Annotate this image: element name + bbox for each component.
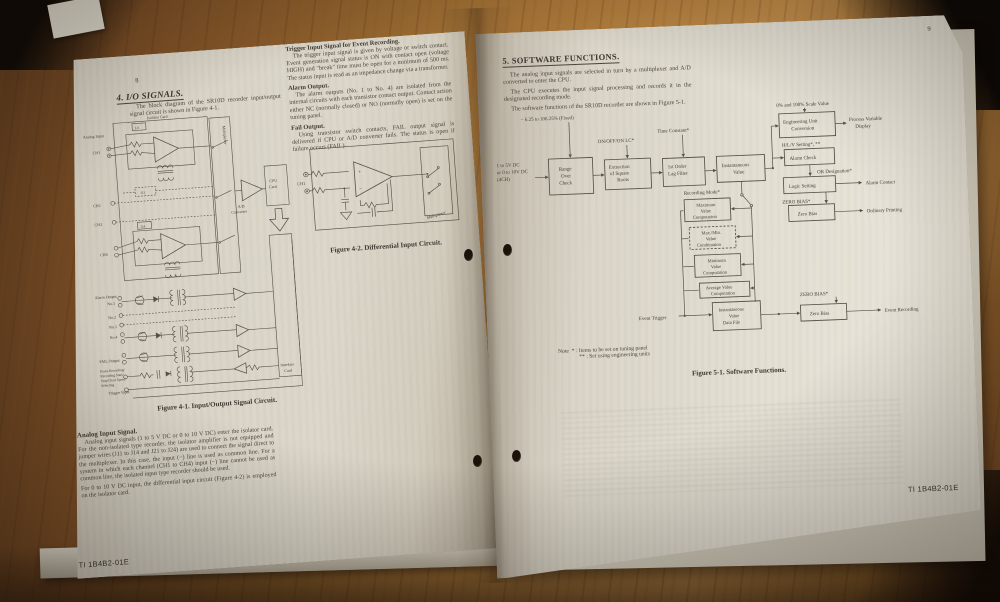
left-page: 8 4. I/O SIGNALS. The block diagram of t… [40,31,503,579]
fig41-if2: Card [284,368,292,374]
f51-mm3: Combination [697,242,722,248]
f51-eng2: Conversion [791,126,815,132]
fig41-multiplexer: Multiplexer [221,125,228,145]
f51-lag1: 1st Order [668,165,687,171]
f51-zero1: Zero Bias [798,212,818,218]
f51-out-event: Event Recording [885,307,919,313]
f51-ext1: Extraction [609,165,631,171]
figure-4-1-caption: Figure 4-1. Input/Output Signal Circuit. [117,393,317,416]
trigger-body: The trigger input signal is given by vol… [286,42,451,83]
trigger-section: Trigger Input Signal for Event Recording… [285,34,456,156]
fig41-j24: J24 [140,224,145,228]
f51-df1: Instantaneous [718,306,744,312]
figure-5-1-caption: Figure 5-1. Software Functions. [629,363,849,380]
punch-hole-2 [503,244,512,256]
right-page: 9 5. SOFTWARE FUNCTIONS. The analog inpu… [475,14,982,578]
fig42-minus: − [359,187,362,192]
fig41-cpu2: Card [269,184,277,190]
f51-out-ordinary: Ordinary Printing [867,208,903,214]
f51-lag2: Lag Filter [668,172,688,178]
f51-ann-onoff: ON/OFF/ON LC* [598,139,635,145]
right-doc-code: TI 1B4B2-01E [908,483,959,494]
figure-note: Note * : Items to be set on tuning panel… [558,345,650,361]
f51-ann-fixed: − 6.25 to 106.25% (Fixed) [521,116,575,123]
punch-hole-4 [512,450,521,462]
f51-range1: Range [559,167,573,173]
analog-body1: Analog input signals (1 to 5 V DC or 0 t… [77,426,276,483]
analog-body2: For 0 to 10 V DC input, the differential… [81,472,278,501]
f51-event-trigger: Event Trigger [639,316,667,322]
cover-corner-top-left [47,0,105,39]
left-doc-code: TI 1B4B2-01E [78,557,129,570]
fig41-no2: No.2 [108,315,116,321]
f51-df2: Value [729,313,740,318]
f51-range3: Check [559,181,572,187]
fig41-no4: No.4 [109,334,117,340]
note2-symbol: ** : [579,354,588,360]
f51-input3: (4CH) [497,178,510,184]
fig41-ad2: Converter [231,209,248,215]
punch-hole-1 [464,249,473,261]
fig41-trigger-input: Trigger Input [108,389,130,396]
right-page-number: 9 [927,26,931,33]
fig42-ch1-label: CH1 [297,181,305,187]
fig41-if1: Interface [280,361,295,367]
f51-out-alarm: Alarm Contact [865,180,895,186]
software-para2: The CPU executes the input signal proces… [504,82,692,104]
software-para3: The software functions of the SR10D reco… [504,99,692,114]
alarm-body: The alarm outputs (No. 1 to No. 4) are i… [289,81,454,122]
alarm-heading: Alarm Output. [288,73,451,92]
f51-logic: Logic Setting [789,184,817,190]
left-section-heading: 4. I/O SIGNALS. [116,88,184,105]
fig41-event3: Stop/Chart Speed [101,377,126,383]
fig41-fail-output: FAIL Output [99,358,120,365]
note2-text: Set using engineering units [589,351,650,359]
note-label: Note [558,348,569,354]
f51-max2: Value [700,208,711,213]
note1-symbol: * : [572,348,578,354]
punch-hole-3 [473,455,482,467]
fig41-ch4: CH4 [100,252,108,258]
f51-range2: Over [561,174,572,179]
f51-ann-time: Time Constant* [657,128,690,134]
f51-lbl-zero1: ZERO BIAS* [782,200,811,206]
fig41-j11: J11 [140,191,145,195]
fig41-event4: Selecting [101,383,115,388]
figure-4-1-diagram: Analog Input CH1 Isolator Card J21 J11 C… [80,100,307,409]
f51-max3: Computation [693,214,718,220]
f51-inst2: Value [733,170,745,175]
f51-mm1: Max./Min. [701,230,721,236]
fig41-j21: J21 [135,126,140,130]
f51-eng1: Engineering Unit [783,119,818,125]
fig41-cpu1: CPU [269,178,277,184]
left-page-number: 8 [135,77,139,84]
f51-ext2: of Square [610,171,630,177]
fig41-no1: No.1 [107,301,115,307]
note1-text: Items to be set on tuning panel [579,345,648,354]
f51-min3: Computation [703,270,728,276]
fig42-multiplexer-label: Multiplexer [425,210,447,221]
analog-heading: Analog Input Signal. [77,418,273,439]
f51-pvd1: Process Variable [849,117,883,123]
fig41-ad1: A/D [238,204,245,210]
figure-5-1-diagram: 1 to 5V DC or 0 to 10V DC (4CH) Range Ov… [492,91,951,352]
f51-inst1: Instantaneous [722,163,750,169]
f51-min1: Minimum [707,258,726,264]
f51-lbl-hlv: H/L/V Setting*, ** [782,142,821,149]
software-intro: The analog input signals are selected in… [503,65,693,116]
fig42-plus: + [358,170,361,175]
fig41-event1: Event Recording/ [100,368,125,374]
f51-df3: Data File [723,320,740,326]
fail-body: Using transistor switch contacts, FAIL o… [291,121,455,154]
f51-max1: Maximum [696,202,716,208]
f51-lbl-recmode: Recording Mode* [684,190,721,196]
software-para1: The analog input signals are selected in… [503,65,691,87]
left-intro: The block diagram of the SR10D recorder … [129,94,282,119]
page-showthrough [560,395,903,497]
fig41-ch1: CH1 [93,150,101,156]
figure-4-2-caption: Figure 4-2. Differential Input Circuit. [302,236,470,256]
fig41-ch2: CH2 [93,203,101,209]
fig41-ch3: CH3 [94,222,102,228]
f51-min2: Value [711,264,722,269]
f51-ext3: Roots [617,178,629,183]
f51-input1: 1 to 5V DC [497,163,521,169]
f51-mm2: Value [706,236,717,241]
f51-zero2: Zero Bias [810,311,830,317]
figure-4-2-diagram: CH1 + − Multiplexer Figure 4-2. Differen… [294,134,470,257]
f51-avg2: Computation [711,290,736,296]
fig41-alarm-output: Alarm Output [95,294,118,301]
f51-pvd2: Display [855,124,871,130]
analog-input-section: Analog Input Signal. Analog input signal… [77,418,278,503]
f51-input2: or 0 to 10V DC [497,170,529,176]
fig41-no3: No.3 [109,324,117,330]
f51-lbl-zero2: ZERO BIAS* [800,292,829,298]
f51-lbl-or: OR Designation* [817,169,853,175]
fig41-isolator-card: Isolator Card [147,114,168,121]
photo-of-open-manual: { "colors":{"wood":"#a9763a","paper":"#d… [0,0,1000,602]
fail-heading: Fail Output. [291,113,454,132]
fig41-event2: Recording Start/ [100,373,123,379]
f51-avg1: Average Value [706,284,733,290]
trigger-heading: Trigger Input Signal for Event Recording… [285,34,448,53]
fig41-analog-input: Analog Input [83,133,105,140]
f51-alarm-check: Alarm Check [789,156,816,162]
f51-lbl-scale: 0% and 100% Scale Value [776,102,830,109]
right-section-heading: 5. SOFTWARE FUNCTIONS. [502,51,620,68]
